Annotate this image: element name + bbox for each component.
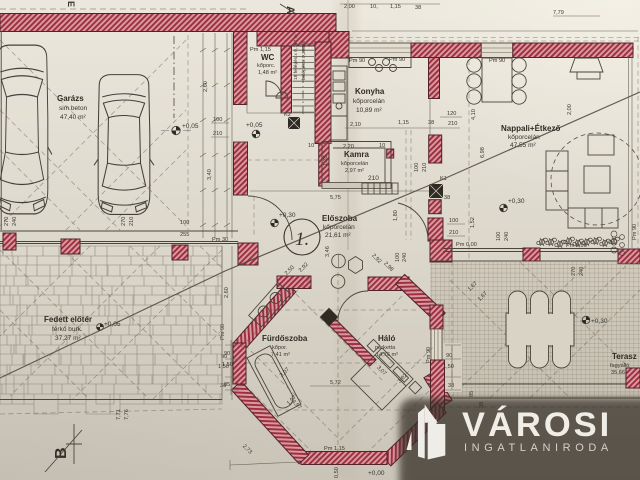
svg-text:21,61 m²: 21,61 m² — [325, 232, 351, 239]
svg-text:240: 240 — [402, 253, 408, 262]
svg-text:Pm 0,00: Pm 0,00 — [456, 242, 477, 248]
svg-text:210: 210 — [368, 175, 379, 182]
svg-text:Pm 1,15: Pm 1,15 — [324, 446, 345, 452]
svg-text:+0,00: +0,00 — [368, 470, 385, 477]
svg-text:belépés x 0,308 m: belépés x 0,308 m — [301, 41, 307, 80]
svg-text:6,98: 6,98 — [480, 147, 486, 158]
svg-text:Garázs: Garázs — [57, 94, 84, 103]
svg-text:sim.beton: sim.beton — [59, 105, 88, 112]
svg-text:Pm 30: Pm 30 — [212, 237, 228, 243]
svg-text:Pm 90: Pm 90 — [489, 58, 505, 64]
svg-text:47,40 m²: 47,40 m² — [60, 114, 86, 121]
svg-text:10: 10 — [379, 143, 385, 149]
svg-text:4,10: 4,10 — [471, 109, 477, 120]
svg-text:+0,30: +0,30 — [279, 212, 296, 219]
svg-text:270: 270 — [4, 217, 10, 226]
svg-text:1,50: 1,50 — [222, 362, 233, 368]
svg-text:0,50: 0,50 — [334, 467, 340, 478]
svg-text:270: 270 — [121, 217, 127, 226]
svg-text:kőpor.: kőpor. — [272, 345, 288, 351]
svg-text:Háló: Háló — [378, 334, 395, 343]
svg-text:120: 120 — [447, 111, 456, 117]
svg-text:2,60: 2,60 — [224, 287, 230, 298]
svg-text:210: 210 — [213, 131, 222, 137]
svg-text:100: 100 — [213, 117, 222, 123]
svg-text:210: 210 — [449, 230, 458, 236]
svg-text:2,97 m²: 2,97 m² — [345, 168, 364, 174]
svg-text:Fedett előtér: Fedett előtér — [44, 315, 92, 324]
svg-text:Pm 90: Pm 90 — [389, 57, 405, 63]
svg-text:10,: 10, — [370, 4, 378, 10]
svg-text:2,00: 2,00 — [567, 104, 573, 115]
svg-text:270: 270 — [571, 267, 577, 276]
svg-text:INGATLANIRODA: INGATLANIRODA — [464, 442, 613, 454]
svg-text:100: 100 — [414, 163, 420, 172]
svg-text:100: 100 — [496, 232, 502, 241]
svg-text:Előszoba: Előszoba — [322, 214, 358, 223]
svg-text:18 fellépés x 0,167 m: 18 fellépés x 0,167 m — [293, 34, 299, 80]
svg-text:+0,05: +0,05 — [182, 123, 199, 130]
svg-text:38: 38 — [444, 195, 450, 201]
svg-text:2,20: 2,20 — [343, 144, 354, 150]
svg-text:Konyha: Konyha — [355, 87, 385, 96]
svg-text:240: 240 — [579, 267, 585, 276]
svg-text:2,00: 2,00 — [344, 4, 355, 10]
svg-text:+0,30: +0,30 — [508, 198, 525, 205]
svg-text:210: 210 — [422, 163, 428, 172]
svg-text:kőporcelán: kőporcelán — [508, 134, 540, 141]
svg-text:10,89 m²: 10,89 m² — [356, 107, 382, 114]
svg-text:100: 100 — [395, 253, 401, 262]
svg-text:90: 90 — [446, 353, 452, 359]
svg-text:1,52: 1,52 — [470, 217, 476, 228]
svg-text:Pm 90: Pm 90 — [349, 58, 365, 64]
svg-text:VÁROSI: VÁROSI — [462, 404, 612, 444]
svg-text:Terasz: Terasz — [612, 352, 637, 361]
svg-text:10: 10 — [308, 143, 314, 149]
svg-text:1,35: 1,35 — [323, 155, 329, 166]
svg-text:240: 240 — [504, 232, 510, 241]
svg-text:7,71: 7,71 — [116, 409, 122, 420]
svg-text:85: 85 — [469, 391, 475, 397]
svg-text:5,72: 5,72 — [330, 380, 341, 386]
svg-text:1,80: 1,80 — [393, 210, 399, 221]
svg-text:Pm 90: Pm 90 — [220, 324, 226, 340]
svg-text:térkő burk.: térkő burk. — [52, 326, 83, 333]
svg-text:+0,30: +0,30 — [591, 318, 608, 325]
svg-text:+0,05: +0,05 — [246, 122, 263, 129]
svg-text:Fürdőszoba: Fürdőszoba — [262, 334, 308, 343]
svg-text:3,40: 3,40 — [207, 169, 213, 180]
svg-text:kőporc.: kőporc. — [257, 63, 276, 69]
svg-text:WC: WC — [261, 53, 275, 62]
svg-text:85: 85 — [224, 382, 230, 388]
svg-text:2,60: 2,60 — [203, 81, 209, 92]
svg-text:3,46: 3,46 — [325, 246, 331, 257]
svg-text:kőporcelán: kőporcelán — [341, 161, 368, 167]
svg-text:1,15: 1,15 — [390, 4, 401, 10]
svg-text:1.: 1. — [295, 229, 309, 250]
svg-text:kőporcelán: kőporcelán — [353, 98, 385, 105]
svg-text:210: 210 — [129, 217, 135, 226]
svg-text:1,48 m²: 1,48 m² — [258, 70, 277, 76]
svg-text:7,79: 7,79 — [553, 10, 564, 16]
svg-text:38: 38 — [428, 120, 434, 126]
svg-text:90: 90 — [224, 351, 230, 357]
svg-text:1,15: 1,15 — [398, 120, 409, 126]
svg-text:100: 100 — [449, 218, 458, 224]
svg-text:Kamra: Kamra — [344, 150, 369, 159]
svg-text:E: E — [66, 1, 76, 7]
svg-text:Pm 90: Pm 90 — [632, 224, 638, 240]
svg-text:2,10: 2,10 — [350, 122, 361, 128]
svg-text:210: 210 — [448, 121, 457, 127]
svg-text:7,76: 7,76 — [124, 409, 130, 420]
svg-text:255: 255 — [180, 232, 189, 238]
svg-text:38: 38 — [448, 383, 454, 389]
svg-text:240: 240 — [12, 217, 18, 226]
svg-text:38: 38 — [415, 5, 421, 11]
svg-text:5,75: 5,75 — [330, 195, 341, 201]
